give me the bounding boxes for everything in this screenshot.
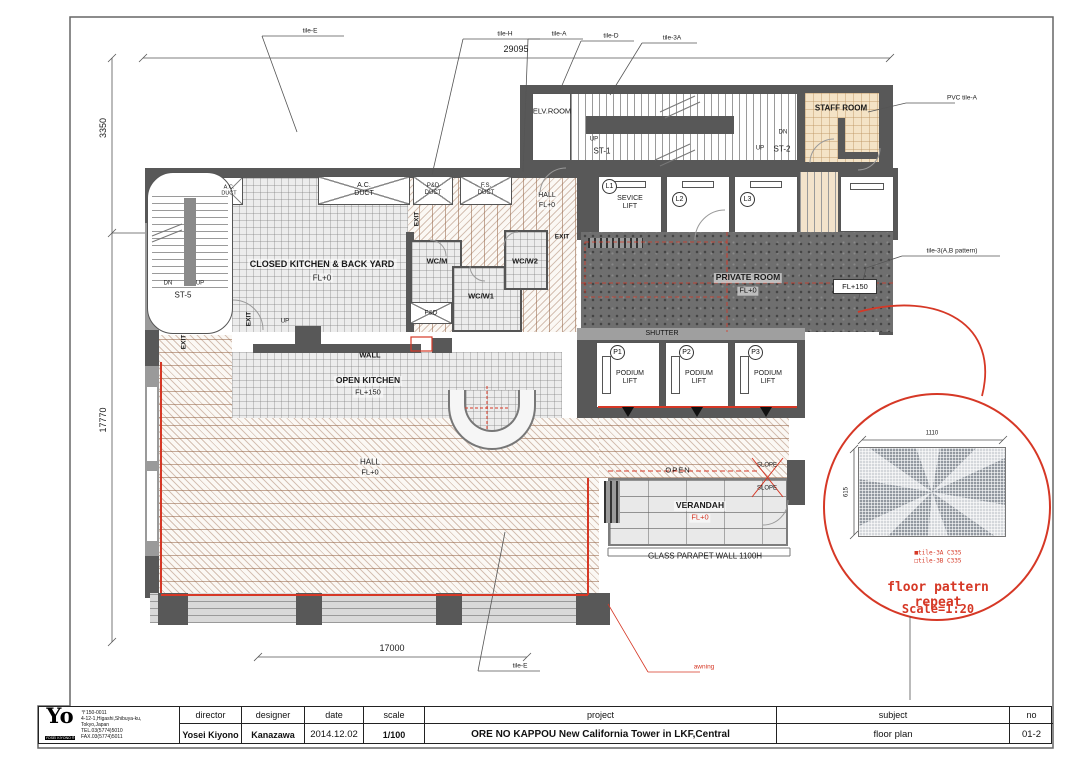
duct-fs-label: F.S. DUCT — [478, 183, 495, 197]
titleblock-date: date 2014.12.02 — [304, 707, 363, 743]
company-logo: Yo — [39, 706, 81, 726]
private-fl150-box: FL+150 — [833, 279, 877, 294]
private-fl: FL+0 — [737, 287, 758, 296]
titleblock-project: project ORE NO KAPPOU New California Tow… — [424, 707, 776, 743]
designer-value: Kanazawa — [242, 724, 304, 745]
pillar-4 — [576, 593, 610, 625]
podium-p3-tag: P3 — [748, 345, 763, 360]
wall-shutter-band — [577, 328, 805, 340]
room-label-wcw2: WC/W2 — [512, 258, 538, 267]
lift-l2-tag: L2 — [672, 192, 687, 207]
lift-l1-label: SEVICE LIFT — [617, 195, 643, 211]
room-label-wcm: WC/M — [427, 258, 448, 267]
project-label: project — [425, 707, 776, 724]
st5-up-label: UP — [196, 281, 204, 288]
podium-p3-slit — [740, 356, 749, 394]
podium-p2-tag: P2 — [679, 345, 694, 360]
address-fax: FAX.03(5774)5011 — [81, 734, 141, 740]
detail-legend-a: ■tile-3A C335 — [915, 551, 962, 558]
lift-right-door — [850, 183, 884, 190]
director-label: director — [180, 707, 241, 724]
titleblock-designer: designer Kanazawa — [241, 707, 304, 743]
stair-st2-label: ST-2 — [774, 144, 791, 153]
podium-p2-slit — [671, 356, 680, 394]
lift-l1-door — [614, 181, 646, 188]
st5-dn-label: DN — [164, 281, 173, 288]
wall-label: WALL — [359, 352, 380, 361]
slope-label-2: SLOPE — [757, 486, 777, 493]
exit-label-3: EXIT — [245, 312, 252, 326]
room-label-staff: STAFF ROOM — [815, 103, 867, 112]
room-label-private: PRIVATE ROOM — [714, 273, 782, 283]
hall-upper-fl: FL+0 — [537, 202, 557, 210]
callout-tile-e-bottom: tile-E — [513, 662, 528, 669]
verandah-hatch — [604, 481, 620, 523]
wall-staff-left — [797, 93, 805, 170]
open-label: OPEN — [665, 467, 690, 476]
pillar-1 — [158, 593, 188, 625]
scale-label: scale — [364, 707, 424, 724]
title-block: Yo YOSEI KIYONO ® 〒150-0011 4-12-1,Higas… — [38, 706, 1052, 744]
fixture-fd-label: F&D — [425, 309, 438, 316]
room-label-elv: ELV.ROOM — [533, 108, 571, 117]
no-label: no — [1010, 707, 1053, 724]
room-label-verandah: VERANDAH — [674, 501, 726, 511]
private-hatch-mark — [588, 238, 643, 248]
exit-label-1: EXIT — [555, 233, 569, 240]
director-value: Yosei Kiyono — [180, 724, 241, 745]
wall-block-a — [295, 326, 321, 352]
room-label-closed-kitchen: CLOSED KITCHEN & BACK YARD — [248, 259, 397, 269]
dim-left-upper: 3350 — [98, 118, 108, 138]
date-label: date — [305, 707, 363, 724]
titleblock-subject: subject floor plan — [776, 707, 1009, 743]
callout-tile-e: tile-E — [303, 27, 318, 34]
company-logo-sub: YOSEI KIYONO ® — [45, 736, 76, 740]
detail-legend-b: □tile-3B C335 — [915, 559, 962, 566]
titleblock-no: no 01-2 — [1009, 707, 1053, 743]
exit-label-2: EXIT — [413, 212, 420, 226]
stair-up-label: UP — [590, 137, 598, 144]
stair-st1-label: ST-1 — [594, 146, 611, 155]
no-value: 01-2 — [1010, 724, 1053, 745]
lift-l2-door — [682, 181, 714, 188]
stair-center-wall — [586, 116, 734, 134]
callout-pvc-tile-a: PVC tile-A — [947, 94, 977, 101]
titleblock-director: director Yosei Kiyono — [179, 707, 241, 743]
room-elv — [532, 93, 572, 163]
room-label-wcw1: WC/W1 — [468, 293, 494, 302]
dim-bottom: 17000 — [379, 643, 404, 653]
private-fl150-label: FL+150 — [842, 282, 868, 291]
hall-main-fl: FL+0 — [359, 469, 380, 478]
detail-pattern-tile — [858, 447, 1006, 537]
room-label-open-kitchen: OPEN KITCHEN — [334, 376, 402, 386]
wall-block-b — [432, 338, 452, 353]
duct-pd-label: P&D DUCT — [425, 183, 442, 197]
podium-p3-label: PODIUM LIFT — [754, 370, 782, 386]
callout-tile-3ab: tile-3(A,B pattern) — [927, 247, 978, 254]
podium-p1-tag: P1 — [610, 345, 625, 360]
callout-tile-a: tile-A — [552, 30, 567, 37]
closed-kitchen-fl: FL+0 — [311, 273, 333, 282]
callout-tile-3a: tile-3A — [663, 34, 681, 41]
wall-left-mid — [145, 330, 159, 366]
lift-l1-tag: L1 — [602, 179, 617, 194]
stair-st5-label: ST-5 — [175, 290, 192, 299]
project-value: ORE NO KAPPOU New California Tower in LK… — [425, 724, 776, 745]
podium-p2-label: PODIUM LIFT — [685, 370, 713, 386]
subject-label: subject — [777, 707, 1009, 724]
wall-bottom-band — [150, 593, 610, 623]
window-left-3 — [147, 470, 157, 542]
pillar-3 — [436, 593, 462, 625]
duct-ac-small-label: A.C. DUCT — [221, 185, 236, 198]
subject-value: floor plan — [777, 724, 1009, 745]
parapet-label: GLASS PARAPET WALL 1100H — [648, 551, 762, 560]
designer-label: designer — [242, 707, 304, 724]
wall-left-low — [145, 556, 159, 598]
slope-label-1: SLOPE — [757, 463, 777, 470]
stair-up-label2: UP — [756, 146, 764, 153]
detail-dim-height: 615 — [844, 487, 851, 497]
callout-tile-h: tile-H — [497, 30, 512, 37]
verandah-fl: FL+0 — [689, 514, 710, 523]
kitchen-up-label: UP — [281, 319, 289, 326]
floor-plan-sheet: ELV.ROOM UP ST-1 DN UP ST-2 STAFF ROOM A… — [0, 0, 1080, 764]
wall-segment — [520, 85, 532, 173]
callout-tile-d: tile-D — [603, 32, 618, 39]
pillar-2 — [296, 593, 322, 625]
wall-staff-inner2 — [838, 152, 878, 159]
stair-mini — [800, 172, 838, 236]
titleblock-scale: scale 1/100 — [363, 707, 424, 743]
lift-l3-tag: L3 — [740, 192, 755, 207]
floor-hall-left-strip — [159, 335, 232, 418]
dim-top: 29095 — [503, 44, 528, 54]
floor-hall-main — [159, 418, 599, 595]
date-value: 2014.12.02 — [305, 724, 363, 745]
callout-awning: awning — [694, 663, 715, 670]
scale-value: 1/100 — [364, 724, 424, 745]
window-left-2 — [147, 386, 157, 462]
logo-cell: Yo YOSEI KIYONO ® 〒150-0011 4-12-1,Higas… — [39, 707, 179, 743]
shutter-label: SHUTTER — [645, 330, 678, 338]
stair-dn-label: DN — [779, 130, 788, 137]
wall-interior — [253, 344, 421, 353]
podium-p1-slit — [602, 356, 611, 394]
lift-l3-door — [750, 181, 782, 188]
detail-dim-width: 1110 — [926, 431, 938, 438]
exit-label-4: EXIT — [180, 335, 187, 349]
duct-ac-label: A.C. DUCT — [354, 182, 373, 198]
dim-left-main: 17770 — [98, 407, 108, 432]
hall-upper-label: HALL — [536, 192, 558, 200]
stair-st5-rail — [184, 198, 196, 286]
detail-scale: Scale=1:20 — [902, 603, 974, 617]
podium-p1-label: PODIUM LIFT — [616, 370, 644, 386]
hall-main-label: HALL — [358, 457, 382, 466]
open-kitchen-fl: FL+150 — [353, 389, 383, 398]
wall-verandah-right — [787, 460, 805, 505]
